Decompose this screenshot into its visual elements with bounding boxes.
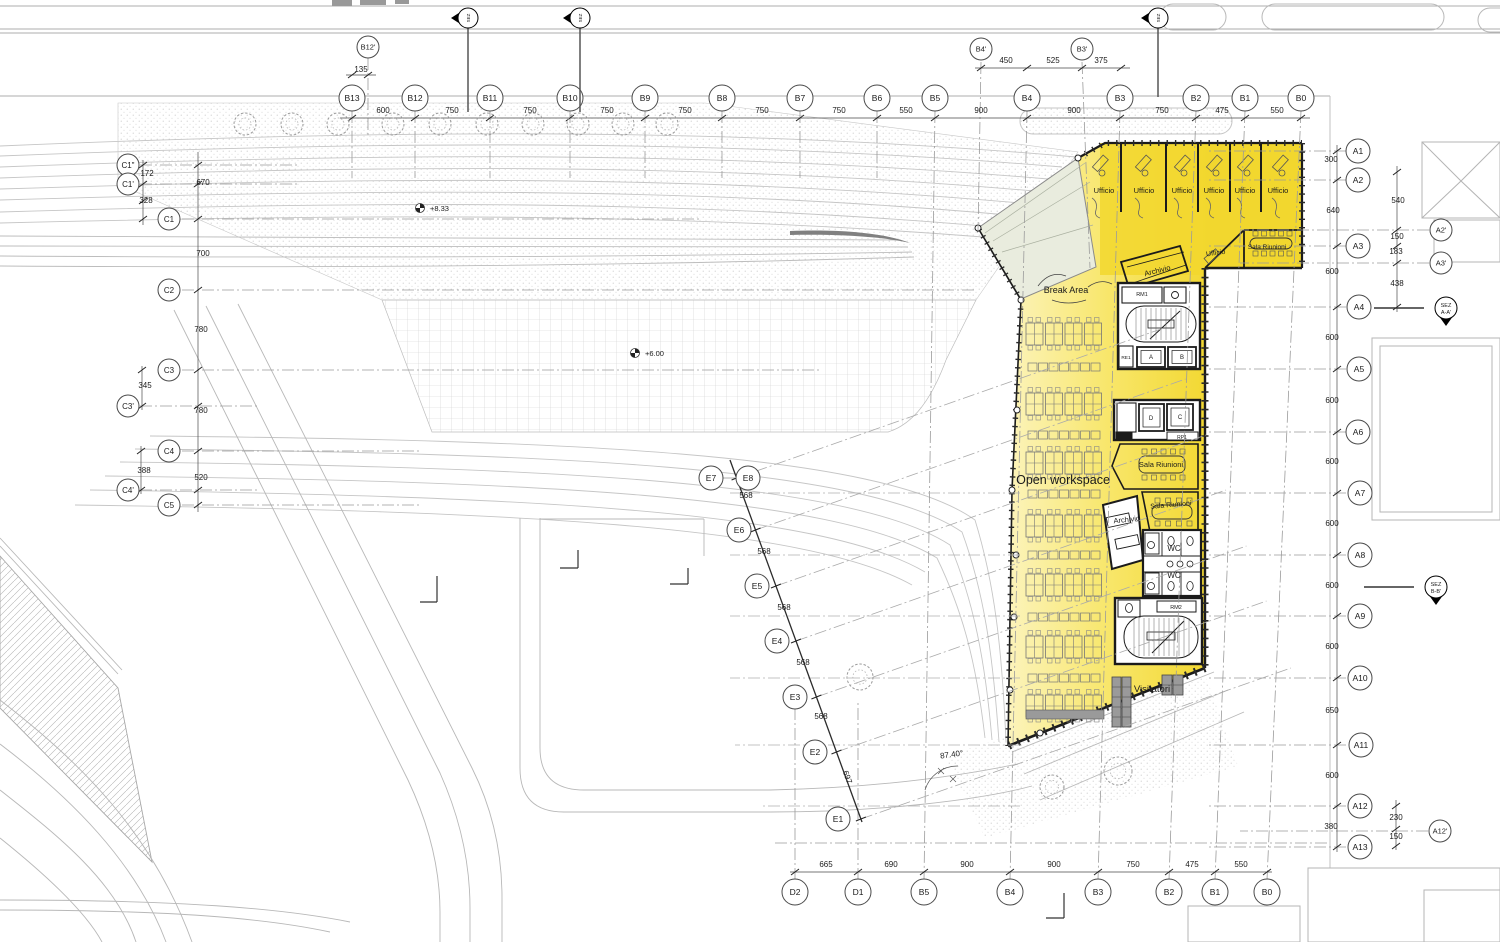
dimension-text: 600	[1325, 267, 1339, 276]
axis-label: B10	[562, 93, 577, 103]
axis-bubble-A12: A12'	[1429, 820, 1451, 842]
axis-bubble-C1: C1'	[117, 173, 139, 195]
axis-bubble-A1: A1	[1346, 139, 1370, 163]
dimension-text: 665	[819, 860, 833, 869]
dimension-text: 600	[376, 106, 390, 115]
axis-bubble-E7: E7	[699, 466, 723, 490]
room-label: Sala Riunioni	[1139, 460, 1184, 469]
axis-bubble-E3: E3	[783, 685, 807, 709]
axis-bubble-D2: D2	[782, 879, 808, 905]
dimension-text: 520	[194, 473, 208, 482]
axis-label: C4'	[122, 486, 134, 495]
lift-core-2	[1114, 400, 1200, 440]
axis-bubble-A10: A10	[1348, 666, 1372, 690]
room-label: D	[1149, 416, 1154, 422]
axis-label: C1	[164, 215, 175, 224]
axis-bubble-B2: B2	[1156, 879, 1182, 905]
axis-bubble-C3: C3	[158, 359, 180, 381]
room-label: Ufficio	[1204, 186, 1225, 195]
dimension-text: 550	[1270, 106, 1284, 115]
section-marker: SEZ	[1141, 8, 1168, 97]
axis-bubble-A6: A6	[1346, 420, 1370, 444]
floor-plan-drawing: B13B12B11B10B9B8B7B6B5B4B3B2B1B0B12'B4'B…	[0, 0, 1500, 942]
dimension-text: 750	[1155, 106, 1169, 115]
dimension-text: 345	[138, 381, 152, 390]
axis-bubble-C3: C3'	[117, 395, 139, 417]
axis-bubble-B3: B3'	[1071, 38, 1093, 60]
axis-label: B1	[1210, 887, 1221, 897]
axis-label: B3	[1093, 887, 1104, 897]
dimension-text: 600	[1325, 642, 1339, 651]
axis-bubble-C5: C5	[158, 494, 180, 516]
dimension-text: 900	[1047, 860, 1061, 869]
axis-bubble-D1: D1	[845, 879, 871, 905]
dimension-text: 550	[899, 106, 913, 115]
room-label: Ufficio	[1172, 186, 1193, 195]
axis-label: B4'	[976, 45, 987, 54]
svg-text:SEZ: SEZ	[1156, 13, 1161, 22]
dimension-text: 230	[1389, 813, 1403, 822]
axis-label: C5	[164, 501, 175, 510]
axis-label: E8	[743, 473, 754, 483]
axis-label: B1	[1240, 93, 1251, 103]
axis-label: E7	[706, 473, 717, 483]
dimension-text: 600	[1325, 581, 1339, 590]
axis-bubble-A11: A11	[1349, 733, 1373, 757]
dimension-text: 780	[194, 325, 208, 334]
dimension-text: 568	[757, 547, 771, 556]
axis-bubble-A13: A13	[1348, 835, 1372, 859]
dimension-text: 750	[678, 106, 692, 115]
axis-bubble-B7: B7	[787, 85, 813, 111]
axis-label: B2	[1164, 887, 1175, 897]
axis-bubble-E6: E6	[727, 518, 751, 542]
axis-label: A4	[1354, 302, 1365, 312]
room-label: RP1	[1177, 435, 1187, 441]
axis-bubble-E2: E2	[803, 740, 827, 764]
axis-bubble-C2: C2	[158, 279, 180, 301]
axis-bubble-B11: B11	[477, 85, 503, 111]
axis-bubble-E1: E1	[826, 807, 850, 831]
dimension-text: 600	[1325, 519, 1339, 528]
axis-bubble-A3: A3	[1346, 234, 1370, 258]
svg-text:SEZ: SEZ	[1431, 582, 1442, 588]
room-tag-chip	[1116, 432, 1132, 440]
dimension-text: 183	[1389, 247, 1403, 256]
axis-label: A6	[1353, 427, 1364, 437]
dimension-text: 380	[1324, 822, 1338, 831]
axis-label: A1	[1353, 146, 1364, 156]
axis-bubble-A5: A5	[1347, 357, 1371, 381]
axis-bubble-A2: A2	[1346, 168, 1370, 192]
axis-bubble-E8: E8	[736, 466, 760, 490]
axis-bubble-A2: A2'	[1430, 219, 1452, 241]
axis-label: B9	[640, 93, 651, 103]
axis-bubble-B5: B5	[911, 879, 937, 905]
clipped-edge-marks	[332, 0, 409, 6]
axis-label: B4	[1022, 93, 1033, 103]
dimension-text: 150	[1390, 232, 1404, 241]
dimension-text: 700	[196, 249, 210, 258]
room-label: Break Area	[1044, 285, 1089, 295]
axis-label: B3	[1115, 93, 1126, 103]
axis-label: B12	[407, 93, 422, 103]
axis-label: C3	[164, 366, 175, 375]
elevation-marker: +8.33	[416, 204, 449, 214]
axis-bubble-B3: B3	[1085, 879, 1111, 905]
axis-label: A3'	[1436, 259, 1447, 268]
axis-label: A13	[1352, 842, 1367, 852]
room-label: B	[1180, 355, 1184, 361]
axis-label: C1'	[122, 180, 134, 189]
dimension-text: 568	[739, 491, 753, 500]
dimension-text: 150	[1389, 832, 1403, 841]
visitor-desk-pod	[1112, 677, 1121, 727]
dimension-text: 475	[1215, 106, 1229, 115]
axis-bubble-A4: A4	[1347, 295, 1371, 319]
axis-label: A12	[1352, 801, 1367, 811]
axis-label: B0	[1296, 93, 1307, 103]
axis-bubble-E4: E4	[765, 629, 789, 653]
room-label: RM1	[1136, 292, 1148, 298]
elevation-text: +6.00	[645, 349, 664, 358]
axis-bubble-E5: E5	[745, 574, 769, 598]
dimension-text: 388	[137, 466, 151, 475]
axis-label: E1	[833, 814, 844, 824]
axis-label: E4	[772, 636, 783, 646]
dimension-text: 900	[974, 106, 988, 115]
axis-label: A8	[1355, 550, 1366, 560]
axis-label: B11	[483, 93, 498, 103]
dimension-text: 750	[445, 106, 459, 115]
dimension-text: 750	[600, 106, 614, 115]
axis-label: B4	[1005, 887, 1016, 897]
dimension-text: 550	[1234, 860, 1248, 869]
axis-label: A2'	[1436, 226, 1447, 235]
gray-desk-bar	[1026, 710, 1104, 719]
axis-bubble-A8: A8	[1348, 543, 1372, 567]
dimension-text: 375	[1094, 56, 1108, 65]
axis-label: A3	[1353, 241, 1364, 251]
axis-label: E5	[752, 581, 763, 591]
dimension-text: 750	[832, 106, 846, 115]
dimension-text: 450	[999, 56, 1013, 65]
axis-bubble-B12: B12	[402, 85, 428, 111]
room-label: Ufficio	[1134, 186, 1155, 195]
visitor-desk-pod	[1173, 675, 1183, 695]
axis-bubble-B9: B9	[632, 85, 658, 111]
axis-bubble-B1: B1	[1232, 85, 1258, 111]
top-wing-fill	[1100, 143, 1302, 275]
axis-bubble-B5: B5	[922, 85, 948, 111]
wc-block	[1143, 530, 1201, 596]
room-label: Ufficio	[1235, 186, 1256, 195]
dimension-text: 670	[196, 178, 210, 187]
room-label: RM2	[1170, 605, 1182, 611]
axis-bubble-A3: A3'	[1430, 252, 1452, 274]
axis-label: A10	[1352, 673, 1367, 683]
axis-label: B12'	[361, 43, 376, 52]
elevation-marker: +6.00	[631, 349, 664, 359]
axis-label: C4	[164, 447, 175, 456]
axis-bubble-B1: B1	[1202, 879, 1228, 905]
dimension-text: 650	[1325, 706, 1339, 715]
axis-bubble-B0: B0	[1288, 85, 1314, 111]
dimension-text: 697	[841, 769, 854, 785]
axis-label: C1"	[121, 161, 134, 170]
room-label: A	[1149, 355, 1153, 361]
svg-text:SEZ: SEZ	[1441, 303, 1452, 309]
axis-label: B2	[1191, 93, 1202, 103]
axis-bubble-B4: B4	[1014, 85, 1040, 111]
dimension-text: 600	[1325, 457, 1339, 466]
dimension-text: 600	[1325, 333, 1339, 342]
axis-label: A9	[1355, 611, 1366, 621]
dimension-text: 900	[960, 860, 974, 869]
axis-label: D1	[853, 887, 864, 897]
axis-bubble-B12: B12'	[357, 36, 379, 58]
room-label: C	[1178, 415, 1183, 421]
dimension-text: 525	[1046, 56, 1060, 65]
plaza-surfaces	[118, 103, 1078, 432]
axis-label: B8	[717, 93, 728, 103]
room-label: Sala Riunioni	[1248, 244, 1286, 251]
section-marker: SEZB-B'	[1364, 576, 1447, 605]
dimension-text: 540	[1391, 196, 1405, 205]
room-label: Ufficio	[1268, 186, 1289, 195]
axis-label: C3'	[122, 402, 134, 411]
dimension-text: 780	[194, 406, 208, 415]
axis-label: B5	[930, 93, 941, 103]
axis-bubble-B2: B2	[1183, 85, 1209, 111]
room-label: RE1	[1121, 355, 1131, 361]
tree-icon	[847, 664, 873, 690]
elevation-text: +8.33	[430, 204, 449, 213]
axis-bubble-C4: C4'	[117, 479, 139, 501]
axis-bubble-B13: B13	[339, 85, 365, 111]
room-label: Visitatori	[1134, 684, 1170, 695]
axis-bubble-B10: B10	[557, 85, 583, 111]
axis-bubble-B6: B6	[864, 85, 890, 111]
dimension-text: 328	[139, 196, 153, 205]
plan-svg: B13B12B11B10B9B8B7B6B5B4B3B2B1B0B12'B4'B…	[0, 0, 1500, 942]
room-label: Ufficio	[1094, 186, 1115, 195]
dimension-text: 135	[354, 65, 368, 74]
axis-bubble-C4: C4	[158, 440, 180, 462]
room-label: WC	[1167, 571, 1181, 580]
axis-label: C2	[164, 286, 175, 295]
dimension-text: 438	[1390, 279, 1404, 288]
axis-label: E3	[790, 692, 801, 702]
axis-label: B5	[919, 887, 930, 897]
axis-label: B3'	[1077, 45, 1088, 54]
dimension-text: 600	[1325, 396, 1339, 405]
dimension-text: 900	[1067, 106, 1081, 115]
axis-label: D2	[790, 887, 801, 897]
visitor-desk-pod	[1122, 677, 1131, 727]
axis-label: B6	[872, 93, 883, 103]
axis-label: B0	[1262, 887, 1273, 897]
dimension-text: 300	[1324, 155, 1338, 164]
axis-label: B13	[344, 93, 359, 103]
axis-label: A5	[1354, 364, 1365, 374]
svg-text:B-B': B-B'	[1431, 589, 1441, 595]
svg-text:SEZ: SEZ	[466, 13, 471, 22]
axis-bubble-A7: A7	[1348, 481, 1372, 505]
dimension-text: 750	[1126, 860, 1140, 869]
axis-bubble-B4: B4	[997, 879, 1023, 905]
axis-label: A12'	[1433, 827, 1448, 836]
axis-label: E2	[810, 747, 821, 757]
dimension-text: 172	[140, 169, 154, 178]
axis-bubble-B0: B0	[1254, 879, 1280, 905]
axis-bubble-B8: B8	[709, 85, 735, 111]
axis-label: B7	[795, 93, 806, 103]
dimension-text: 690	[884, 860, 898, 869]
dimension-text: 568	[777, 603, 791, 612]
dimension-text: 568	[796, 658, 810, 667]
axis-label: E6	[734, 525, 745, 535]
axis-bubble-A12: A12	[1348, 794, 1372, 818]
svg-text:SEZ: SEZ	[578, 13, 583, 22]
dimension-text: 600	[1325, 771, 1339, 780]
axis-label: A2	[1353, 175, 1364, 185]
axis-bubble-A9: A9	[1348, 604, 1372, 628]
axis-bubble-B3: B3	[1107, 85, 1133, 111]
section-marker: SEZA-A'	[1374, 297, 1457, 326]
svg-text:A-A': A-A'	[1441, 310, 1451, 316]
dimension-text: 750	[755, 106, 769, 115]
room-label: Open workspace	[1016, 473, 1110, 487]
axis-label: A7	[1355, 488, 1366, 498]
dimension-text: 640	[1326, 206, 1340, 215]
room-label: WC	[1167, 544, 1181, 553]
axis-label: A11	[1354, 740, 1369, 750]
dimension-text: 475	[1185, 860, 1199, 869]
axis-bubble-B4: B4'	[970, 38, 992, 60]
dimension-text: 568	[814, 712, 828, 721]
axis-bubble-C1: C1	[158, 208, 180, 230]
